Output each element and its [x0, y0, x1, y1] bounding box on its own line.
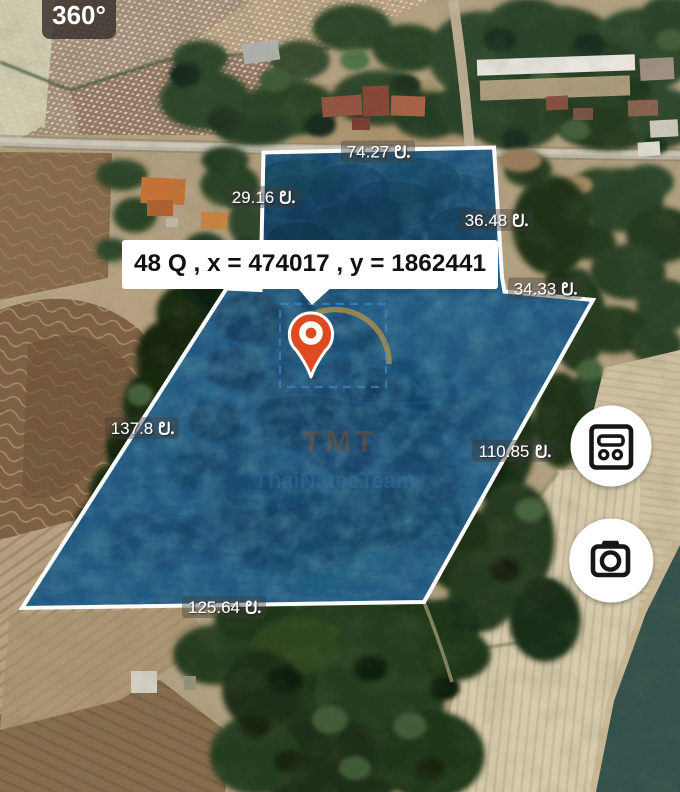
svg-text:36.48: 36.48: [465, 211, 508, 230]
svg-text:34.33: 34.33: [514, 280, 557, 299]
svg-text:ThaiNateeTeam: ThaiNateeTeam: [255, 468, 416, 493]
svg-text:29.16: 29.16: [232, 188, 275, 207]
svg-text:74.27: 74.27: [347, 143, 390, 162]
svg-text:360°: 360°: [52, 0, 106, 30]
svg-text:125.64: 125.64: [188, 598, 240, 617]
svg-text:137.8: 137.8: [111, 419, 154, 438]
svg-text:110.85: 110.85: [479, 442, 530, 461]
svg-text:48 Q , x = 474017 , y = 186244: 48 Q , x = 474017 , y = 1862441: [134, 250, 486, 277]
svg-text:TMT: TMT: [302, 424, 378, 459]
